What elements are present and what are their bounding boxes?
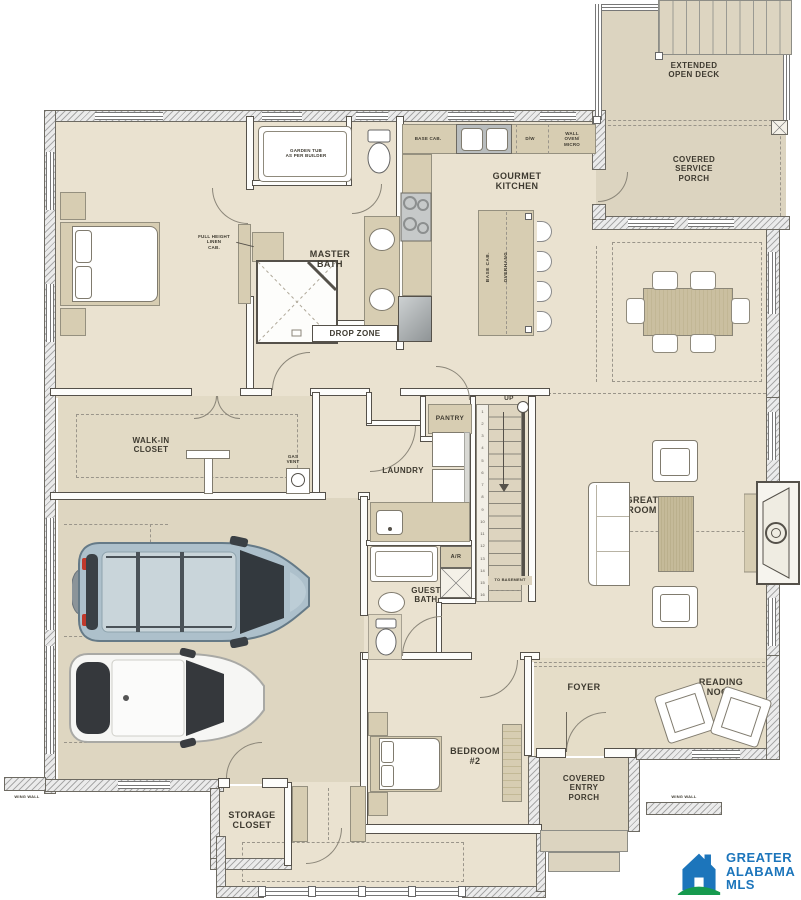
stair-step-number: 16 <box>477 589 488 601</box>
linen-cabinet-icon <box>238 224 251 304</box>
hall-closet-icon <box>292 786 308 842</box>
sofa-cushion-line <box>597 516 629 517</box>
island-overhang-label: OVERHANG <box>503 221 513 313</box>
nightstand-icon <box>368 792 388 816</box>
foyer-ceiling-line <box>534 662 770 663</box>
sink-icon <box>369 288 395 311</box>
stair-step-number: 9 <box>477 503 488 515</box>
deck-rail <box>783 55 790 120</box>
counter-divider <box>548 124 549 154</box>
interior-wall <box>50 388 192 396</box>
dining-chair-icon <box>690 334 716 353</box>
island-base-cab-label: BASE CAB. <box>485 221 495 313</box>
window <box>262 112 302 120</box>
dishwasher-label: D/W <box>514 134 546 144</box>
bed-pillow <box>75 266 92 299</box>
window <box>768 252 776 314</box>
kitchen-sink-icon <box>456 124 512 154</box>
stair-step-number: 14 <box>477 564 488 576</box>
extended-open-deck-label: EXTENDED OPEN DECK <box>638 58 750 82</box>
window-post <box>308 886 316 897</box>
stair-step-number: 12 <box>477 540 488 552</box>
wing-wall-right <box>646 802 722 815</box>
white-car-icon <box>64 648 268 748</box>
guest-tub-inner <box>375 551 433 577</box>
foyer-ceiling-line <box>534 666 770 667</box>
window-post <box>358 886 366 897</box>
sink-basin <box>486 128 508 151</box>
armchair-icon <box>652 586 698 628</box>
guest-bath-label: GUEST BATH <box>400 582 452 608</box>
stair-step-number: 8 <box>477 491 488 503</box>
nightstand-icon <box>60 308 86 336</box>
dining-open-line <box>596 246 597 382</box>
interior-wall <box>246 296 254 392</box>
logo-line-2: ALABAMA <box>726 865 795 879</box>
interior-wall <box>366 392 372 424</box>
stairs-arrow-shaft <box>503 412 504 484</box>
interior-wall <box>50 492 326 500</box>
interior-wall <box>362 824 542 834</box>
sofa-back-line <box>596 485 597 585</box>
interior-wall <box>360 496 368 616</box>
toilet-icon <box>364 128 394 178</box>
dining-chair-icon <box>731 298 750 324</box>
interior-wall <box>312 392 320 500</box>
foyer-label: FOYER <box>556 680 612 694</box>
garage-bay-line <box>64 524 168 525</box>
interior-wall <box>604 748 636 758</box>
window <box>46 284 54 342</box>
window <box>628 219 674 227</box>
interior-wall <box>528 396 536 602</box>
stairs-arrow-head <box>499 484 509 492</box>
exterior-wall-bumpout-bottom <box>462 886 546 898</box>
dryer-icon <box>432 469 465 504</box>
closet-island-icon <box>204 458 213 494</box>
exterior-wall-entry-porch-left <box>528 756 540 832</box>
logo-text: GREATER ALABAMA MLS <box>726 851 795 892</box>
walk-in-closet-label: WALK-IN CLOSET <box>106 432 196 458</box>
window <box>540 112 576 120</box>
bedroom-2-label: BEDROOM #2 <box>444 742 506 770</box>
armchair-cushion <box>660 448 690 476</box>
master-bath-label: MASTER BATH <box>298 246 362 272</box>
stair-step-number: 6 <box>477 466 488 478</box>
toilet-icon <box>373 618 399 658</box>
stair-step-number: 2 <box>477 417 488 429</box>
gourmet-kitchen-label: GOURMET KITCHEN <box>462 168 572 194</box>
guest-sink-icon <box>378 592 405 613</box>
interior-wall <box>536 748 566 758</box>
window <box>448 112 514 120</box>
nightstand-icon <box>60 192 86 220</box>
window <box>688 219 734 227</box>
porch-screen-line <box>780 126 781 216</box>
interior-wall <box>262 778 288 788</box>
wing-wall-left <box>4 777 46 791</box>
dining-chair-icon <box>690 271 716 290</box>
deck-rail <box>596 4 662 11</box>
garage-door-opening <box>46 646 54 754</box>
wall-oven-micro-label: WALL OVEN/ MICRO <box>550 126 594 152</box>
reading-chair-cushion <box>721 697 761 737</box>
exterior-wall-kitchen-right <box>592 204 606 220</box>
interior-wall <box>246 116 254 190</box>
window <box>95 112 163 120</box>
dining-chair-icon <box>626 298 645 324</box>
great-room-open-line <box>548 393 766 394</box>
cooktop-icon <box>400 192 432 242</box>
deck-post <box>593 116 601 124</box>
laundry-sink-icon <box>376 510 403 535</box>
dining-table-icon <box>643 288 733 336</box>
front-door-leaf <box>566 712 567 752</box>
covered-service-porch-label: COVERED SERVICE PORCH <box>644 150 744 188</box>
porch-corner-post <box>771 120 788 135</box>
dining-chair-icon <box>652 334 678 353</box>
to-basement-label: TO BASEMENT <box>488 576 532 585</box>
window <box>118 781 170 789</box>
interior-wall <box>240 388 272 396</box>
washer-icon <box>432 432 465 467</box>
window-post <box>408 886 416 897</box>
base-cab-label: BASE CAB. <box>404 134 452 144</box>
stair-step-number: 11 <box>477 528 488 540</box>
stair-step-number: 7 <box>477 479 488 491</box>
window-post <box>458 886 466 897</box>
sofa-icon <box>588 482 630 586</box>
sink-icon <box>369 228 395 251</box>
interior-wall <box>524 656 532 756</box>
basement-dash <box>488 590 522 591</box>
interior-wall <box>400 388 550 396</box>
bed-pillow <box>75 230 92 263</box>
armchair-icon <box>652 440 698 482</box>
exterior-wall-entry-porch-right <box>628 756 640 832</box>
dining-chair-icon <box>652 271 678 290</box>
stair-step-number: 5 <box>477 454 488 466</box>
stairs-railing <box>522 410 525 578</box>
window <box>356 112 388 120</box>
guest-tub-icon <box>370 546 438 582</box>
window <box>692 750 740 758</box>
window <box>46 152 54 210</box>
stair-step-number: 1 <box>477 405 488 417</box>
stair-step-number: 13 <box>477 552 488 564</box>
coffee-table-icon <box>658 496 694 572</box>
sink-basin <box>461 128 483 151</box>
wing-wall-left-label: WING WALL <box>4 793 50 802</box>
gas-vent-label: GAS VENT <box>278 452 308 466</box>
appliance-panel <box>464 432 470 504</box>
linen-cabinet-icon <box>252 232 284 262</box>
mls-house-icon <box>676 849 722 895</box>
floor-plan-canvas: GARDEN TUB AS PER BUILDER FULL HEIGHT LI… <box>0 0 801 900</box>
island-corner <box>525 326 532 333</box>
storage-closet-label: STORAGE CLOSET <box>216 806 288 834</box>
garden-tub-label: GARDEN TUB AS PER BUILDER <box>268 140 344 166</box>
pantry-label: PANTRY <box>428 408 472 430</box>
suv-car-icon <box>72 536 318 648</box>
reading-chair-cushion <box>665 693 705 733</box>
covered-entry-porch-label: COVERED ENTRY PORCH <box>546 768 622 808</box>
porch-step <box>548 852 620 872</box>
window <box>768 412 776 460</box>
logo-line-1: GREATER <box>726 851 795 865</box>
armchair-cushion <box>660 594 690 622</box>
stairs-up-label: UP <box>498 394 520 404</box>
hall-closet-icon <box>350 786 366 842</box>
greater-alabama-mls-logo: GREATER ALABAMA MLS <box>668 845 798 898</box>
logo-line-3: MLS <box>726 878 795 892</box>
wing-wall-right-label: WING WALL <box>650 793 718 802</box>
water-heater-dial <box>291 473 305 487</box>
deck-porch-divider <box>598 125 782 126</box>
bed-pillow <box>381 741 394 763</box>
full-height-linen-label: FULL HEIGHT LINEN CAB. <box>192 230 236 254</box>
deck-porch-divider <box>598 120 782 121</box>
window <box>768 598 776 646</box>
nightstand-icon <box>368 712 388 736</box>
porch-step <box>540 830 628 852</box>
stair-step-number: 15 <box>477 577 488 589</box>
drop-zone-label: DROP ZONE <box>312 325 398 342</box>
stairs-treads <box>488 404 522 602</box>
laundry-label: LAUNDRY <box>376 464 430 477</box>
sofa-cushion-line <box>597 551 629 552</box>
faucet-dot <box>388 527 392 531</box>
stair-step-number: 4 <box>477 442 488 454</box>
garage-door-opening <box>46 518 54 630</box>
ar-label: A/R <box>440 546 472 568</box>
stair-step-number: 3 <box>477 430 488 442</box>
deck-rail <box>595 4 602 120</box>
fireplace-icon <box>744 478 801 588</box>
exterior-wall-bumpout-bottom <box>216 886 264 898</box>
deck-stairs <box>658 0 792 55</box>
island-corner <box>525 213 532 220</box>
stairs-newel <box>517 401 529 413</box>
stair-step-number: 10 <box>477 515 488 527</box>
refrigerator-icon <box>398 296 432 342</box>
interior-wall <box>218 778 230 788</box>
window-post <box>258 886 266 897</box>
bed-pillow <box>381 765 394 787</box>
water-heater-icon <box>286 468 310 494</box>
